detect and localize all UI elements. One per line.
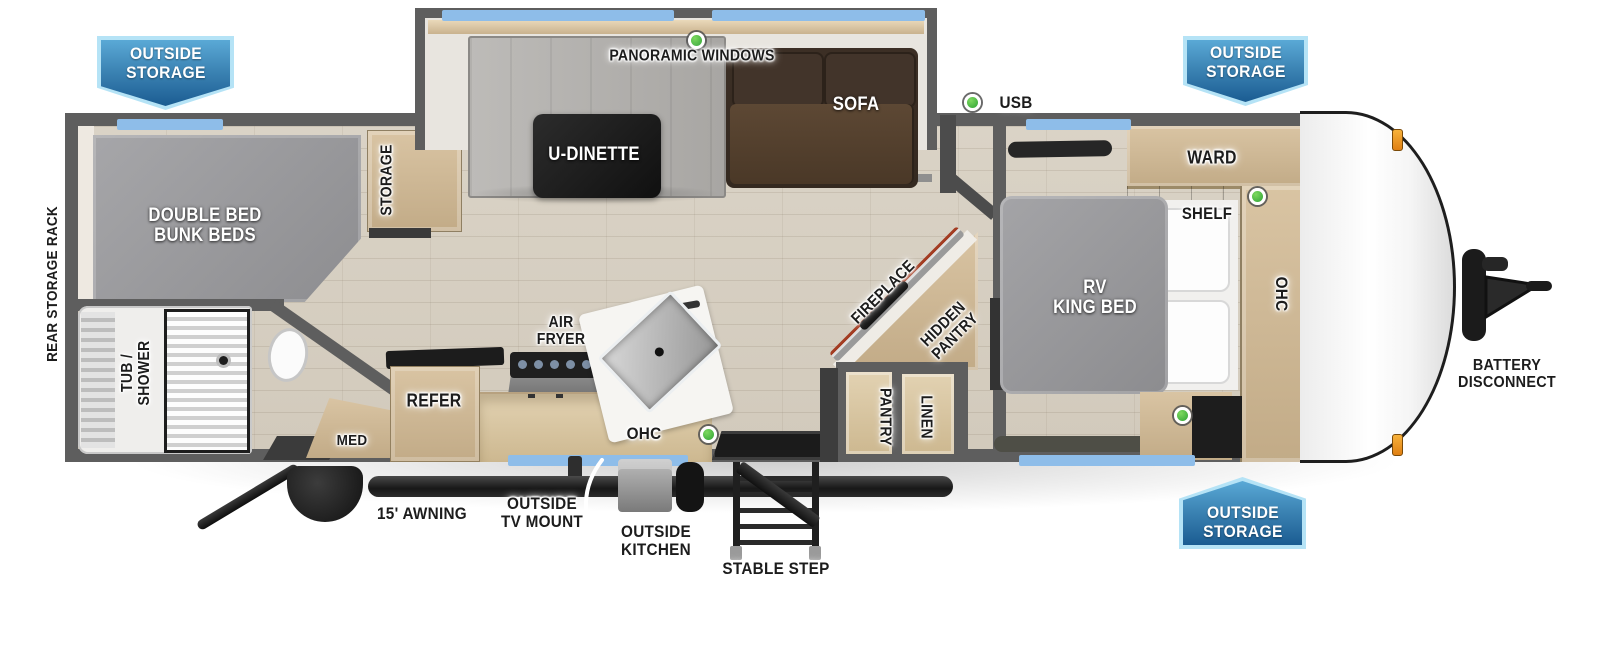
outside-kitchen-label: OUTSIDE KITCHEN (621, 523, 691, 559)
u-dinette-label: U-DINETTE (548, 145, 640, 165)
outside-storage-badge-top-right: OUTSIDE STORAGE (1183, 36, 1308, 106)
med-label: MED (337, 433, 368, 449)
rv-floorplan: OUTSIDE STORAGE OUTSIDE STORAGE OUTSIDE … (0, 0, 1600, 651)
stove-cooktop (510, 352, 598, 378)
entry-door-mat (712, 431, 832, 460)
marker-light-top (1392, 129, 1403, 151)
nightstand-black-unit (1192, 396, 1242, 458)
refer-label: REFER (406, 392, 461, 411)
tub-shower-unit (78, 306, 252, 454)
tub-shower-label: TUB / SHOWER (120, 341, 154, 406)
pantry-label: PANTRY (876, 388, 893, 446)
tub-steps (81, 312, 115, 448)
kitchen-ohc-indicator-dot (700, 426, 717, 443)
faucet-handles (528, 394, 535, 398)
badge-label: OUTSIDE STORAGE (102, 44, 228, 82)
shelf-indicator-dot (1249, 188, 1266, 205)
sofa-label: SOFA (833, 95, 880, 115)
badge-label: OUTSIDE STORAGE (1184, 503, 1301, 541)
shower-glass-door (164, 309, 250, 453)
nightstand-indicator-dot (1174, 407, 1191, 424)
hitch-a-frame (1438, 233, 1568, 363)
shelf-label: SHELF (1182, 205, 1232, 223)
rv-king-bed-label: RV KING BED (1053, 278, 1137, 318)
storage-label: STORAGE (380, 144, 397, 215)
rear-wall-lining (78, 126, 94, 302)
badge-label: OUTSIDE STORAGE (1188, 43, 1303, 81)
front-cap (1300, 111, 1456, 463)
window-top-right (1026, 119, 1131, 130)
step-rail-left (733, 462, 740, 548)
ohc-bedroom-label: OHC (1272, 277, 1290, 312)
linen-label: LINEN (917, 395, 934, 439)
double-bed-bunk-beds-label: DOUBLE BED BUNK BEDS (148, 206, 261, 246)
step-foot-left (730, 546, 742, 560)
slideout-window-right (712, 10, 925, 21)
ward-label: WARD (1187, 149, 1236, 168)
battery-disconnect-label: BATTERY DISCONNECT (1458, 358, 1556, 392)
outside-kitchen-grill (618, 459, 672, 512)
step-rail-right (812, 462, 819, 548)
sofa-seat (730, 104, 914, 184)
ohc-kitchen-label: OHC (627, 425, 662, 443)
closet-dark-panel (820, 368, 838, 462)
panoramic-windows-label: PANORAMIC WINDOWS (609, 49, 774, 66)
window-top-left (117, 119, 223, 130)
sink-drain (653, 346, 666, 359)
slideout-window-left (442, 10, 674, 21)
slideout-valance (428, 20, 924, 34)
window-bottom-right (1019, 455, 1195, 466)
sofa (726, 48, 918, 188)
usb-indicator-dot (964, 94, 981, 111)
step-foot-right (809, 546, 821, 560)
outside-storage-badge-bottom-right: OUTSIDE STORAGE (1179, 477, 1306, 549)
panoramic-window-indicator-dot (688, 32, 705, 49)
outside-tv-mount-label: OUTSIDE TV MOUNT (501, 495, 583, 531)
bedroom-tv-bar (1008, 140, 1112, 158)
usb-label: USB (999, 94, 1032, 112)
rear-storage-rack-label: REAR STORAGE RACK (45, 206, 61, 362)
stove-burner (518, 360, 527, 369)
marker-light-bottom (1392, 434, 1403, 456)
air-fryer-label: AIR FRYER (537, 315, 586, 349)
outside-kitchen-kettle (676, 462, 704, 512)
pillow-bottom (1158, 300, 1230, 384)
shower-drain (219, 356, 228, 365)
bedroom-wardrobe-ohc (1240, 186, 1308, 462)
outside-storage-badge-top-left: OUTSIDE STORAGE (97, 36, 234, 110)
stable-step-label: STABLE STEP (722, 560, 829, 578)
power-cord (578, 458, 622, 553)
awning-label: 15' AWNING (377, 505, 467, 523)
bunk-storage-shelf-shadow (369, 228, 431, 238)
refer-cabinet (390, 366, 480, 462)
